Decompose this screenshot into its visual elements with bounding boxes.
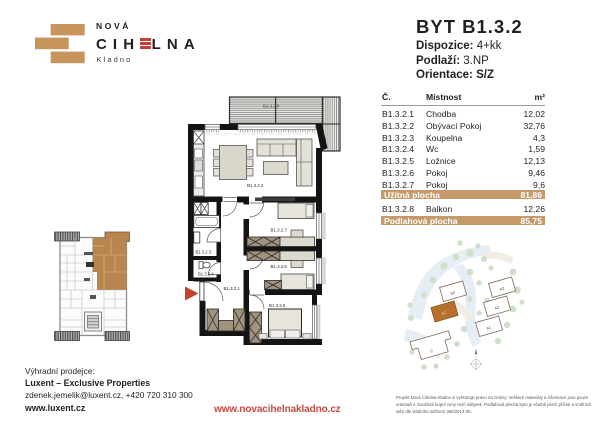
svg-text:B1.3.2.7: B1.3.2.7 (271, 228, 288, 233)
svg-text:B1.3.2.6: B1.3.2.6 (271, 264, 288, 269)
svg-text:B1.3.2.2: B1.3.2.2 (247, 183, 264, 188)
svg-text:B1.3.2.4: B1.3.2.4 (198, 272, 214, 277)
svg-text:B1.3.2.5: B1.3.2.5 (269, 303, 286, 308)
svg-text:B1.3.2.3: B1.3.2.3 (196, 250, 212, 255)
svg-text:B1.3.2.8: B1.3.2.8 (263, 104, 280, 109)
svg-text:B1.3.2.1: B1.3.2.1 (224, 286, 241, 291)
